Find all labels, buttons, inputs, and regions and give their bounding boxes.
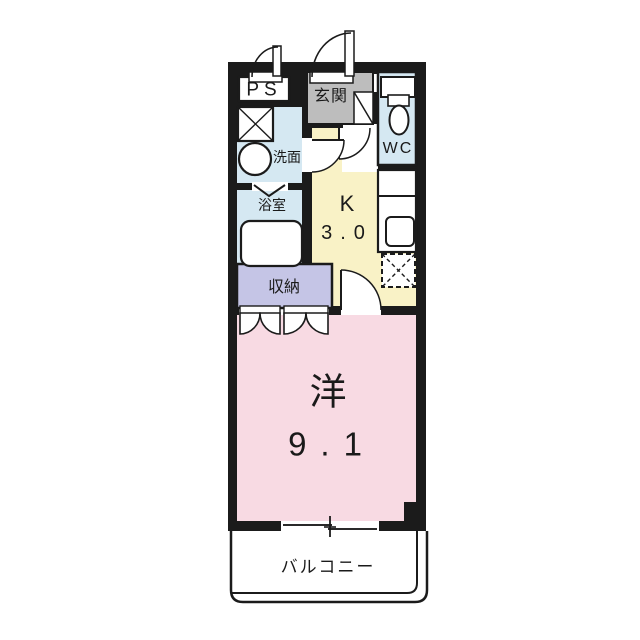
kitchen-counter xyxy=(378,170,416,252)
entrance-label: 玄関 xyxy=(314,89,348,105)
toilet-tank xyxy=(381,77,415,97)
washroom-label: 洗面 xyxy=(273,150,301,164)
kitchen-sink xyxy=(386,217,414,246)
balcony-label: バルコニー xyxy=(281,559,376,576)
entrance-door-leaf xyxy=(345,31,354,76)
entrance-step xyxy=(354,92,373,124)
wall-left xyxy=(228,62,237,531)
floor-plan: PS 玄関 WC 洗面 浴室 収納 K 3.0 洋 9.1 バルコニー xyxy=(0,0,640,640)
wall-corner-pillar xyxy=(404,502,416,521)
bathtub-icon xyxy=(241,221,302,266)
bathroom-label: 浴室 xyxy=(258,198,286,212)
wc-label: WC xyxy=(383,141,414,157)
kitchen-size-label: 3.0 xyxy=(321,223,373,243)
toilet-seat-hinge xyxy=(388,95,409,106)
ps-label: PS xyxy=(246,81,281,100)
western-room-size-label: 9.1 xyxy=(288,428,376,461)
western-room-floor xyxy=(237,315,416,521)
opening-washroom-door xyxy=(302,138,312,172)
western-room-label: 洋 xyxy=(310,374,347,411)
toilet-bowl xyxy=(390,106,409,135)
washbasin-icon xyxy=(239,143,271,175)
wall-washroom-kitchen xyxy=(302,105,312,268)
refrigerator-space xyxy=(382,254,415,287)
washer-pan-icon xyxy=(238,107,273,141)
wall-right xyxy=(416,62,426,531)
closet-doors xyxy=(240,306,328,334)
entrance-door xyxy=(310,31,354,83)
meter-box-door-leaf xyxy=(273,46,281,76)
storage-label: 収納 xyxy=(268,280,300,296)
kitchen-label: K xyxy=(340,193,355,215)
